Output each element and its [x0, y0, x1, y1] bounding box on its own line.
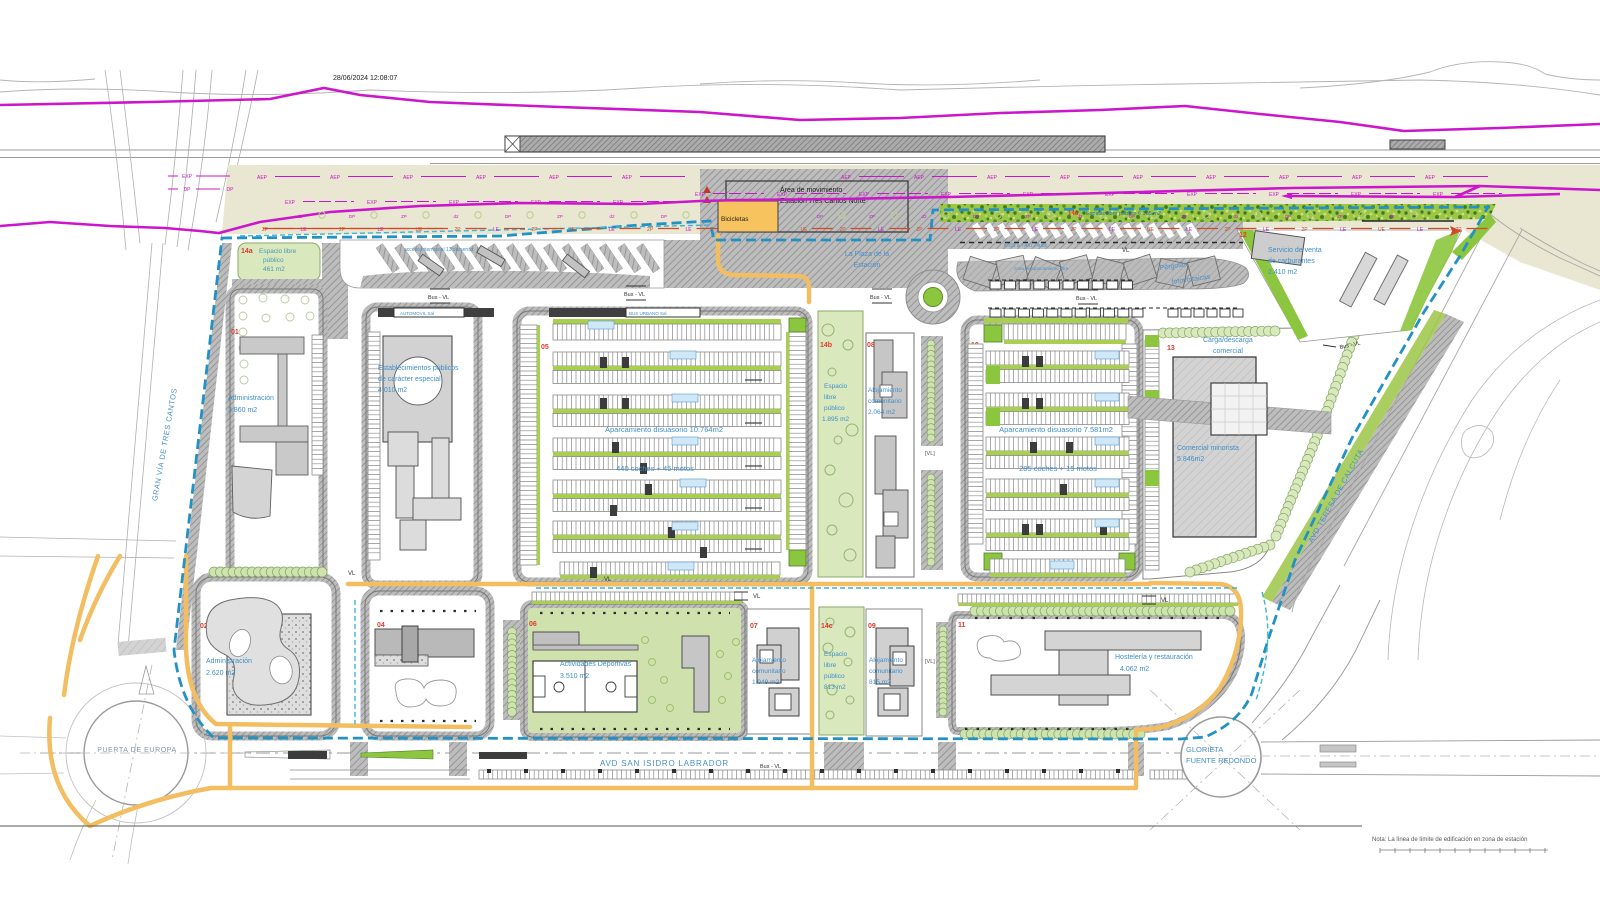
svg-text:Bus - VL: Bus - VL — [624, 292, 645, 298]
svg-text:ZP: ZP — [869, 214, 875, 219]
svg-text:AEP: AEP — [1133, 175, 1144, 181]
svg-text:2.620 m2: 2.620 m2 — [206, 670, 235, 677]
svg-text:VL: VL — [753, 594, 761, 600]
svg-text:AEP: AEP — [987, 175, 998, 181]
svg-text:815 m2: 815 m2 — [869, 679, 891, 686]
svg-text:público: público — [824, 405, 845, 412]
svg-text:EXP: EXP — [1351, 192, 1362, 198]
svg-text:06: 06 — [529, 621, 537, 628]
svg-text:La Plaza de la: La Plaza de la — [845, 251, 889, 258]
svg-text:3.860 m2: 3.860 m2 — [228, 407, 257, 414]
svg-text:Carga/descarga: Carga/descarga — [1203, 337, 1253, 344]
svg-text:Bus - VL: Bus - VL — [760, 764, 781, 770]
svg-text:EXP: EXP — [777, 192, 788, 198]
svg-text:2P: 2P — [1301, 227, 1308, 233]
svg-text:Bus - VL: Bus - VL — [1076, 296, 1097, 302]
svg-text:BUS URBANO Sal: BUS URBANO Sal — [629, 311, 667, 316]
svg-text:LE: LE — [1263, 227, 1270, 233]
svg-text:440 coches + 45 motos: 440 coches + 45 motos — [616, 464, 694, 473]
svg-text:5.846m2: 5.846m2 — [1177, 456, 1204, 463]
svg-text:de carburantes: de carburantes — [1268, 258, 1315, 265]
svg-text:VL: VL — [1161, 598, 1169, 604]
svg-text:813 m2: 813 m2 — [824, 684, 846, 691]
svg-text:Espacio libre público 6.105 m2: Espacio libre público 6.105 m2 — [1086, 211, 1161, 217]
svg-text:Aparcamiento disuasorio 7.581m: Aparcamiento disuasorio 7.581m2 — [999, 425, 1113, 434]
svg-text:09: 09 — [868, 623, 876, 630]
svg-text:EXP: EXP — [182, 174, 193, 180]
svg-text:AVD SAN ISIDRO LABRADOR: AVD SAN ISIDRO LABRADOR — [600, 759, 729, 768]
svg-text:Espacio: Espacio — [824, 651, 848, 658]
svg-text:LE: LE — [685, 227, 692, 233]
svg-text:AEP: AEP — [622, 175, 633, 181]
svg-text:Alojamiento: Alojamiento — [752, 657, 786, 664]
svg-text:LE: LE — [1340, 227, 1347, 233]
svg-text:comercial: comercial — [1213, 348, 1243, 355]
svg-text:2P: 2P — [647, 227, 654, 233]
svg-text:14a: 14a — [241, 248, 253, 255]
svg-text:libre: libre — [824, 662, 837, 669]
svg-text:DP: DP — [817, 214, 823, 219]
svg-text:d2: d2 — [453, 214, 459, 219]
svg-text:DP: DP — [349, 214, 355, 219]
svg-text:UE: UE — [570, 227, 578, 233]
svg-text:04: 04 — [377, 622, 385, 629]
svg-text:EXP: EXP — [1187, 192, 1198, 198]
svg-text:LE: LE — [1186, 227, 1193, 233]
svg-text:Estación: Estación — [854, 262, 881, 269]
svg-text:AEP: AEP — [1060, 175, 1071, 181]
svg-text:LE: LE — [1109, 227, 1116, 233]
svg-text:EXP: EXP — [449, 200, 460, 206]
svg-text:EXP: EXP — [941, 192, 952, 198]
svg-text:2P: 2P — [1224, 227, 1231, 233]
svg-text:Comercial minorista: Comercial minorista — [1177, 445, 1239, 452]
svg-text:EXP: EXP — [1433, 192, 1444, 198]
svg-text:05: 05 — [541, 344, 549, 351]
svg-text:285 coches + 15 motos: 285 coches + 15 motos — [1019, 464, 1097, 473]
svg-text:comunitario: comunitario — [869, 668, 903, 675]
svg-text:EXP: EXP — [613, 200, 624, 206]
svg-text:Administración: Administración — [228, 395, 274, 402]
svg-text:461 m2: 461 m2 — [263, 266, 285, 273]
svg-text:libre: libre — [824, 394, 837, 401]
svg-text:AEP: AEP — [476, 175, 487, 181]
svg-text:Alojamiento: Alojamiento — [868, 387, 902, 394]
svg-text:Actividades Deportivas: Actividades Deportivas — [560, 661, 632, 668]
svg-text:KISS & TAXI 24uds: KISS & TAXI 24uds — [1004, 243, 1048, 249]
svg-text:DP: DP — [661, 214, 667, 219]
svg-text:comunitario: comunitario — [752, 668, 786, 675]
svg-text:AEP: AEP — [1425, 175, 1436, 181]
svg-text:11: 11 — [958, 622, 966, 629]
svg-text:ZP: ZP — [1025, 214, 1031, 219]
svg-text:LE: LE — [1417, 227, 1424, 233]
svg-text:de carácter especial: de carácter especial — [378, 376, 441, 383]
svg-text:EXP: EXP — [531, 200, 542, 206]
svg-text:acceso intermodal 13 dársenas: acceso intermodal 13 dársenas — [404, 247, 474, 253]
svg-text:d2: d2 — [1389, 214, 1395, 219]
svg-text:Aparcamiento disuasorio 10.764: Aparcamiento disuasorio 10.764m2 — [605, 425, 723, 434]
svg-text:d2: d2 — [609, 214, 615, 219]
svg-text:Espacio libre: Espacio libre — [259, 248, 297, 255]
svg-text:14c: 14c — [821, 623, 833, 630]
svg-text:AEP: AEP — [330, 175, 341, 181]
svg-text:ZP: ZP — [1337, 214, 1343, 219]
svg-text:4.010 m2: 4.010 m2 — [378, 387, 407, 394]
svg-text:AEP: AEP — [257, 175, 268, 181]
svg-text:d2: d2 — [1233, 214, 1239, 219]
svg-text:14d: 14d — [1068, 211, 1079, 217]
svg-text:DP: DP — [505, 214, 511, 219]
svg-text:2P: 2P — [839, 227, 846, 233]
svg-text:DP: DP — [227, 187, 235, 193]
svg-text:EXP: EXP — [367, 200, 378, 206]
svg-text:AUTOMOVIL Sal: AUTOMOVIL Sal — [400, 311, 434, 316]
svg-text:d2: d2 — [297, 214, 303, 219]
svg-text:4.062 m2: 4.062 m2 — [1120, 666, 1149, 673]
svg-text:comunitario: comunitario — [868, 398, 902, 405]
svg-text:LE: LE — [955, 227, 962, 233]
svg-text:VL: VL — [1122, 248, 1130, 254]
svg-text:2P: 2P — [1070, 227, 1077, 233]
svg-text:2P: 2P — [916, 227, 923, 233]
svg-text:público: público — [263, 257, 284, 264]
svg-text:VL: VL — [348, 571, 356, 577]
svg-text:público: público — [824, 673, 845, 680]
svg-text:3.510 m2: 3.510 m2 — [560, 673, 589, 680]
svg-text:13: 13 — [1167, 345, 1175, 352]
svg-text:Establecimientos públicos: Establecimientos públicos — [378, 365, 459, 372]
svg-text:1.895 m2: 1.895 m2 — [822, 416, 849, 423]
svg-text:Servicio de venta: Servicio de venta — [1268, 247, 1322, 254]
svg-text:14b: 14b — [820, 342, 832, 349]
svg-text:EXP: EXP — [859, 192, 870, 198]
svg-text:01: 01 — [231, 329, 239, 336]
svg-text:AEP: AEP — [549, 175, 560, 181]
svg-text:FUENTE REDONDO: FUENTE REDONDO — [1186, 756, 1257, 765]
svg-text:PUERTA DE EUROPA: PUERTA DE EUROPA — [97, 747, 177, 754]
svg-text:AEP: AEP — [914, 175, 925, 181]
svg-text:Espacio: Espacio — [824, 383, 848, 390]
svg-text:Hostelería y restauración: Hostelería y restauración — [1115, 654, 1193, 661]
svg-text:LE: LE — [608, 227, 615, 233]
svg-text:EXP: EXP — [1269, 192, 1280, 198]
svg-text:2.410 m2: 2.410 m2 — [1268, 269, 1297, 276]
svg-text:ZP: ZP — [1181, 214, 1187, 219]
svg-text:2.064 m2: 2.064 m2 — [868, 409, 895, 416]
svg-text:UE: UE — [1147, 227, 1155, 233]
svg-text:ZP: ZP — [401, 214, 407, 219]
svg-text:Alojamiento: Alojamiento — [869, 657, 903, 664]
svg-text:EXP: EXP — [695, 192, 706, 198]
svg-text:AEP: AEP — [1279, 175, 1290, 181]
svg-text:2P: 2P — [531, 227, 538, 233]
svg-text:28/06/2024 12:08:07: 28/06/2024 12:08:07 — [333, 75, 397, 82]
svg-text:Bus - VL: Bus - VL — [870, 295, 891, 301]
svg-text:[VL]: [VL] — [925, 659, 935, 665]
svg-text:DP: DP — [973, 214, 979, 219]
svg-text:UE: UE — [1378, 227, 1386, 233]
svg-text:AEP: AEP — [1352, 175, 1363, 181]
svg-text:d2: d2 — [921, 214, 927, 219]
svg-text:DP: DP — [1285, 214, 1291, 219]
svg-text:AEP: AEP — [403, 175, 414, 181]
svg-text:LE: LE — [878, 227, 885, 233]
svg-text:LE: LE — [1032, 227, 1039, 233]
svg-text:Bicicletas: Bicicletas — [721, 216, 749, 223]
svg-text:07: 07 — [750, 623, 758, 630]
svg-text:Área de movimiento: Área de movimiento — [780, 185, 842, 194]
svg-text:zona de aparcamiento libre: zona de aparcamiento libre — [1014, 266, 1069, 271]
svg-text:Administración: Administración — [206, 658, 252, 665]
svg-text:Nota: La línea de límite de ed: Nota: La línea de límite de edificación … — [1372, 837, 1527, 843]
svg-text:AEP: AEP — [1206, 175, 1217, 181]
svg-text:EXP: EXP — [285, 200, 296, 206]
svg-text:GLORIETA: GLORIETA — [1186, 745, 1223, 754]
svg-text:AEP: AEP — [841, 175, 852, 181]
svg-text:ZP: ZP — [557, 214, 563, 219]
svg-text:12: 12 — [1239, 232, 1247, 239]
svg-text:EXP: EXP — [1023, 192, 1034, 198]
svg-text:Bus - VL: Bus - VL — [428, 295, 449, 301]
svg-text:1.049 m2: 1.049 m2 — [752, 679, 779, 686]
svg-text:DP: DP — [184, 187, 192, 193]
svg-text:2P: 2P — [454, 227, 461, 233]
svg-text:2P: 2P — [993, 227, 1000, 233]
svg-text:[VL]: [VL] — [925, 451, 935, 457]
svg-text:EXP: EXP — [1105, 192, 1116, 198]
svg-text:UE: UE — [801, 227, 809, 233]
svg-text:LE: LE — [493, 227, 500, 233]
